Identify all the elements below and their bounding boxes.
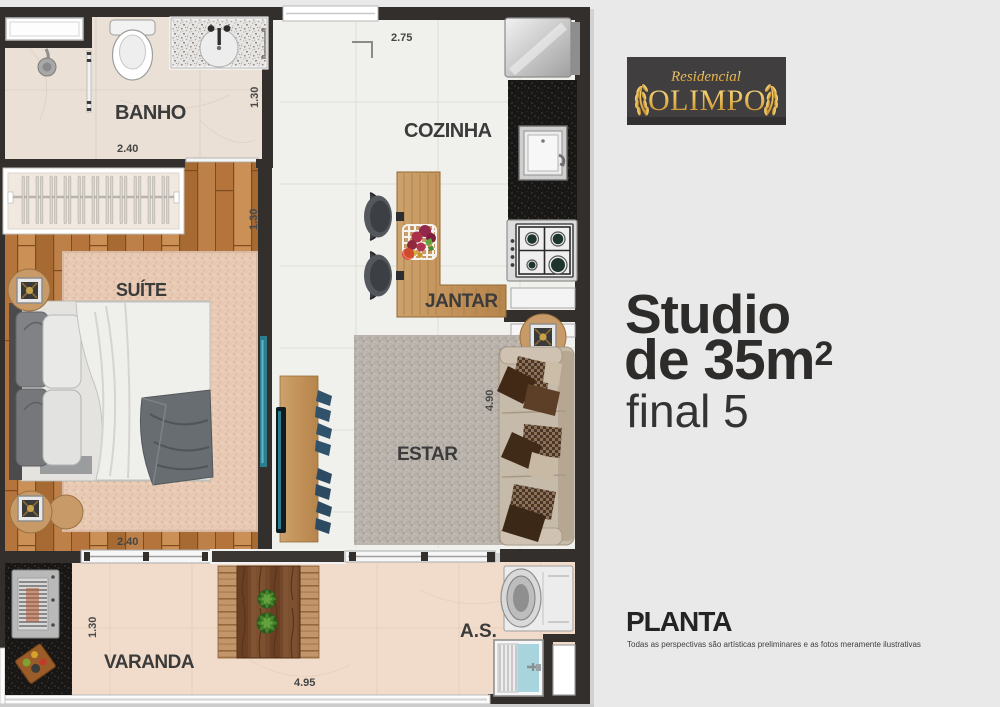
svg-text:Todas as perspectivas são artí: Todas as perspectivas são artísticas pre… xyxy=(627,640,921,649)
svg-text:2.40: 2.40 xyxy=(117,143,138,155)
svg-text:2.40: 2.40 xyxy=(117,536,138,548)
svg-text:PLANTA: PLANTA xyxy=(626,606,732,637)
svg-text:1.30: 1.30 xyxy=(249,87,261,108)
svg-text:JANTAR: JANTAR xyxy=(425,291,498,312)
svg-text:1.30: 1.30 xyxy=(248,209,260,230)
svg-text:de 35m2: de 35m2 xyxy=(624,328,832,392)
svg-text:Residencial: Residencial xyxy=(670,69,741,85)
svg-text:final 5: final 5 xyxy=(626,385,749,437)
svg-text:4.90: 4.90 xyxy=(484,390,496,411)
svg-text:ESTAR: ESTAR xyxy=(397,444,458,465)
svg-text:A.S.: A.S. xyxy=(460,621,497,642)
svg-text:OLIMPO: OLIMPO xyxy=(648,84,766,117)
svg-text:BANHO: BANHO xyxy=(115,102,186,124)
svg-text:SUÍTE: SUÍTE xyxy=(116,279,167,300)
svg-text:2.75: 2.75 xyxy=(391,32,412,44)
svg-text:VARANDA: VARANDA xyxy=(104,652,195,673)
svg-text:4.95: 4.95 xyxy=(294,677,315,689)
svg-text:1.30: 1.30 xyxy=(87,617,99,638)
svg-text:COZINHA: COZINHA xyxy=(404,120,492,142)
